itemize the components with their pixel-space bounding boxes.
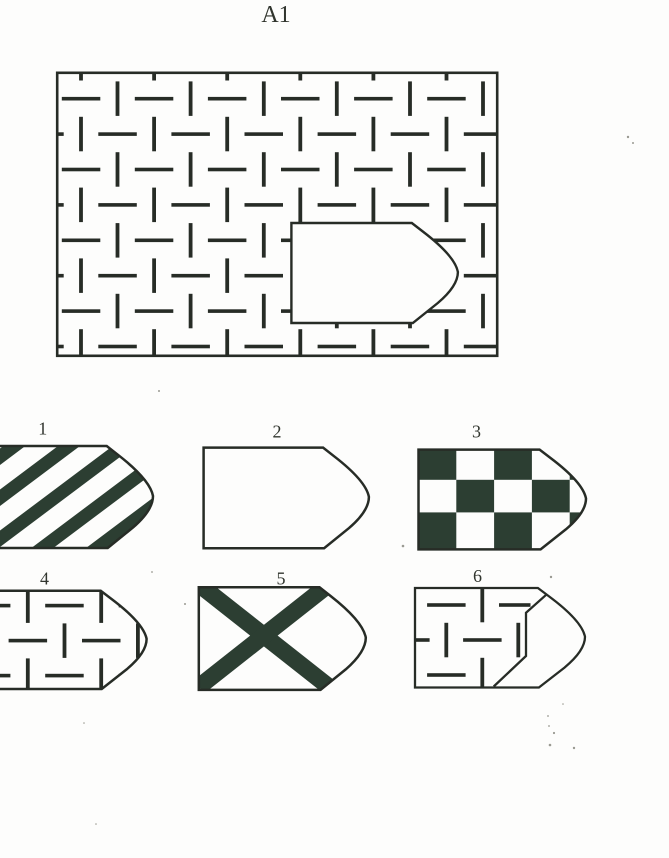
svg-text:3: 3: [472, 422, 481, 442]
svg-text:5: 5: [277, 569, 286, 589]
svg-text:A1: A1: [261, 2, 290, 28]
svg-text:6: 6: [473, 566, 482, 586]
svg-text:1: 1: [38, 419, 47, 439]
svg-text:2: 2: [273, 422, 282, 442]
svg-text:4: 4: [40, 569, 49, 589]
